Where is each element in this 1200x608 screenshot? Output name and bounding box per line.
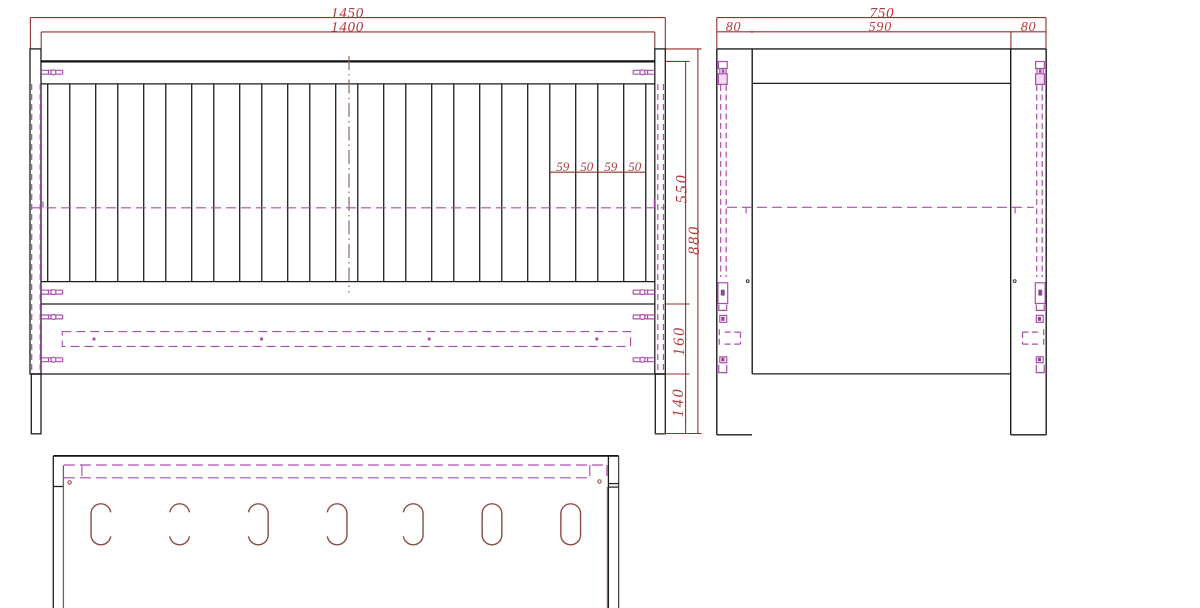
svg-text:50: 50 [580,159,594,174]
svg-text:590: 590 [869,20,892,35]
svg-text:1400: 1400 [331,19,364,35]
svg-text:160: 160 [671,326,688,356]
svg-text:80: 80 [726,20,742,35]
svg-text:59: 59 [604,159,618,174]
svg-text:550: 550 [673,173,690,203]
svg-text:750: 750 [870,5,895,21]
svg-text:880: 880 [686,225,703,255]
svg-text:80: 80 [1021,20,1037,35]
svg-text:59: 59 [556,159,570,174]
svg-text:50: 50 [628,159,642,174]
svg-text:140: 140 [670,387,687,417]
